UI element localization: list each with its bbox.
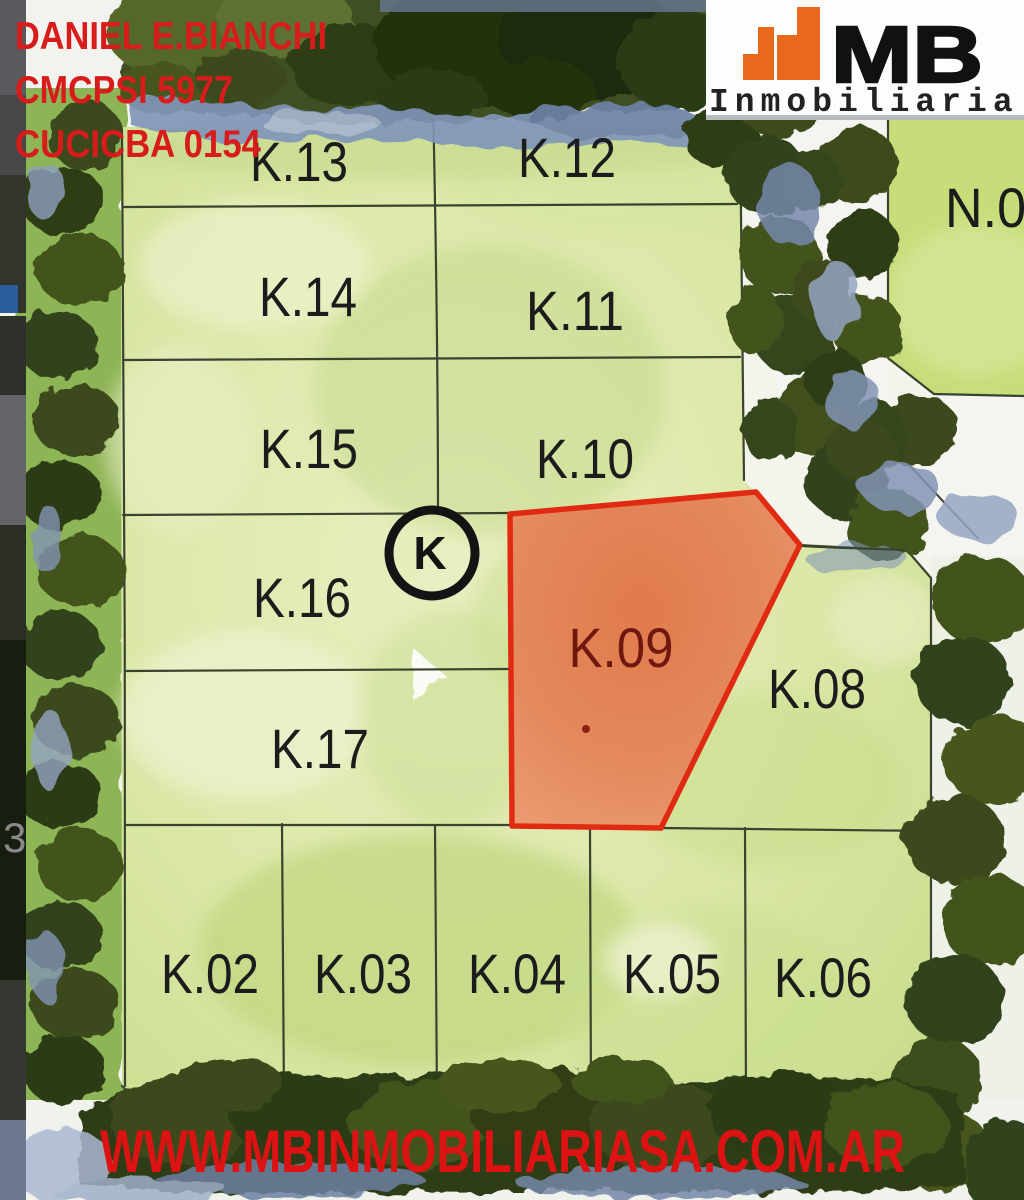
- svg-text:K.02: K.02: [161, 942, 259, 1005]
- svg-text:N.01: N.01: [945, 176, 1024, 239]
- svg-text:K.17: K.17: [271, 717, 369, 780]
- svg-text:K.15: K.15: [260, 417, 358, 480]
- svg-text:K.08: K.08: [768, 657, 866, 720]
- svg-text:K.13: K.13: [250, 130, 348, 193]
- svg-text:WWW.MBINMOBILIARIASA.COM.AR: WWW.MBINMOBILIARIASA.COM.AR: [100, 1118, 905, 1185]
- svg-text:K.03: K.03: [314, 942, 412, 1005]
- svg-text:K.04: K.04: [468, 942, 566, 1005]
- svg-text:CMCPSI 5977: CMCPSI 5977: [15, 69, 233, 112]
- svg-text:K.10: K.10: [536, 427, 634, 490]
- svg-text:DANIEL E.BIANCHI: DANIEL E.BIANCHI: [15, 15, 327, 58]
- svg-text:K.05: K.05: [623, 942, 721, 1005]
- svg-text:K.12: K.12: [518, 126, 616, 189]
- svg-text:K.11: K.11: [526, 279, 624, 342]
- svg-text:K.16: K.16: [253, 566, 351, 629]
- svg-text:CUCICBA 0154: CUCICBA 0154: [15, 123, 261, 166]
- svg-text:K.09: K.09: [569, 616, 674, 679]
- svg-text:K: K: [413, 527, 446, 579]
- svg-text:3: 3: [3, 814, 26, 861]
- svg-text:K.14: K.14: [259, 265, 357, 328]
- svg-text:Inmobiliaria: Inmobiliaria: [709, 84, 1019, 121]
- svg-text:K.06: K.06: [774, 946, 872, 1009]
